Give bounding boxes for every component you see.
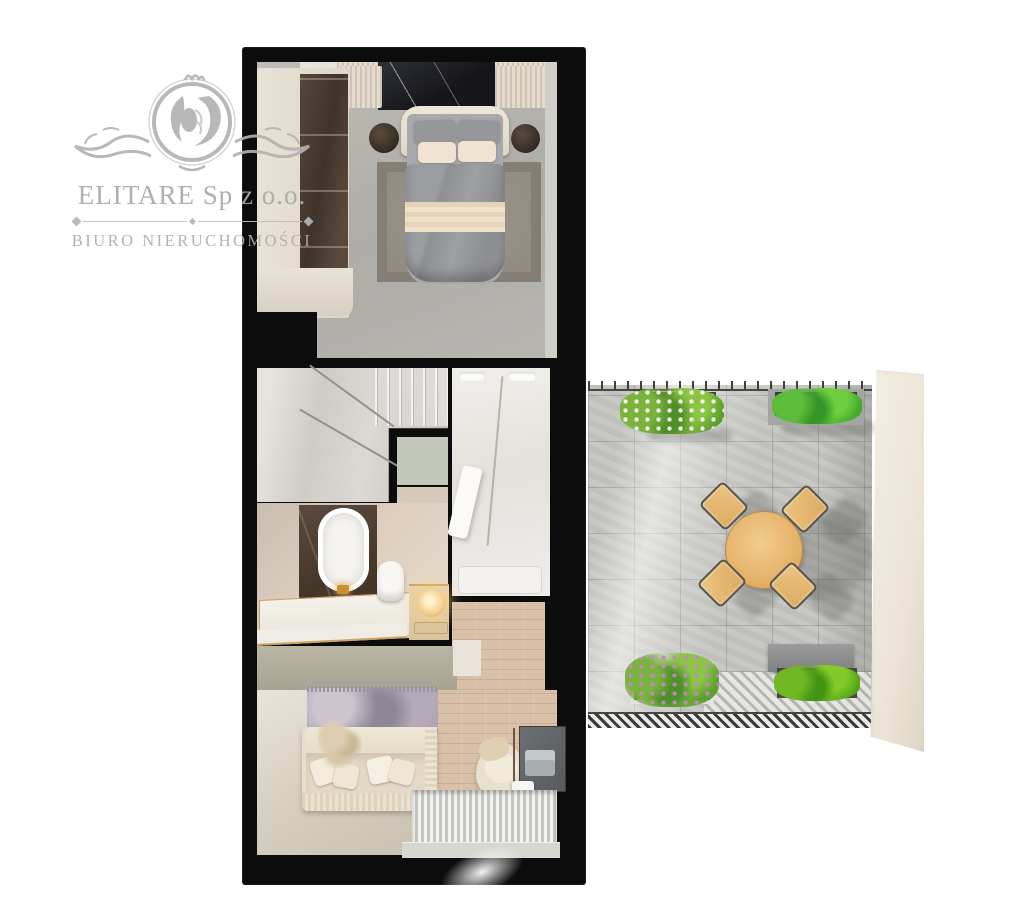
bedroom-wall-strip-right — [545, 62, 557, 358]
freestanding-bathtub — [318, 508, 369, 592]
toilet-alcove-panel — [397, 437, 448, 485]
shower-tray — [458, 566, 542, 594]
rug-fringe — [307, 686, 438, 692]
planter-white-flowers — [620, 388, 724, 434]
bed-pillow-grey-left — [414, 119, 457, 143]
toilet-alcove-wall — [397, 487, 448, 503]
purple-flower-dots — [625, 653, 719, 707]
nightstand-right — [511, 124, 540, 153]
white-flower-dots — [620, 388, 724, 434]
slatted-deck-panel — [412, 790, 557, 844]
toilet — [377, 561, 404, 601]
shower-vent-left — [459, 372, 485, 381]
sideboard-sage — [257, 646, 457, 690]
bed-pillow-cream-right — [458, 141, 496, 162]
laptop — [525, 750, 555, 776]
bathtub-gold-faucet — [337, 585, 349, 594]
hallway-pillar — [453, 640, 481, 676]
bed-pillow-cream-left — [418, 142, 456, 163]
bed-blanket-band — [405, 202, 505, 232]
wardrobe-return-panel — [257, 268, 353, 316]
black-marble-wall-panel — [378, 62, 495, 110]
divider-diamond-center — [188, 218, 195, 225]
planter-green-shrubs-top — [772, 388, 862, 424]
shower-vent-right — [508, 372, 536, 381]
radiator-panel-right — [495, 66, 547, 108]
vanity-tray — [414, 622, 448, 634]
desk-frame-rail — [513, 728, 515, 788]
planter-green-shrubs-bottom — [774, 665, 860, 701]
terrace-privacy-wall — [866, 370, 924, 752]
glowing-sphere-lamp — [418, 590, 445, 617]
terrace-bottom-railing — [588, 712, 872, 728]
floorplan-canvas: ELITARE Sp z o.o. BIURO NIERUCHOMOŚCI — [0, 0, 1024, 911]
nightstand-left — [369, 123, 399, 153]
planter-purple-flowers — [625, 653, 719, 707]
stair-steps — [375, 368, 448, 426]
pampas-plant — [318, 720, 362, 768]
sofa-arm-ribbed — [425, 727, 437, 793]
bedroom-wall-notch — [257, 312, 317, 358]
divider-diamond-left — [71, 217, 81, 227]
